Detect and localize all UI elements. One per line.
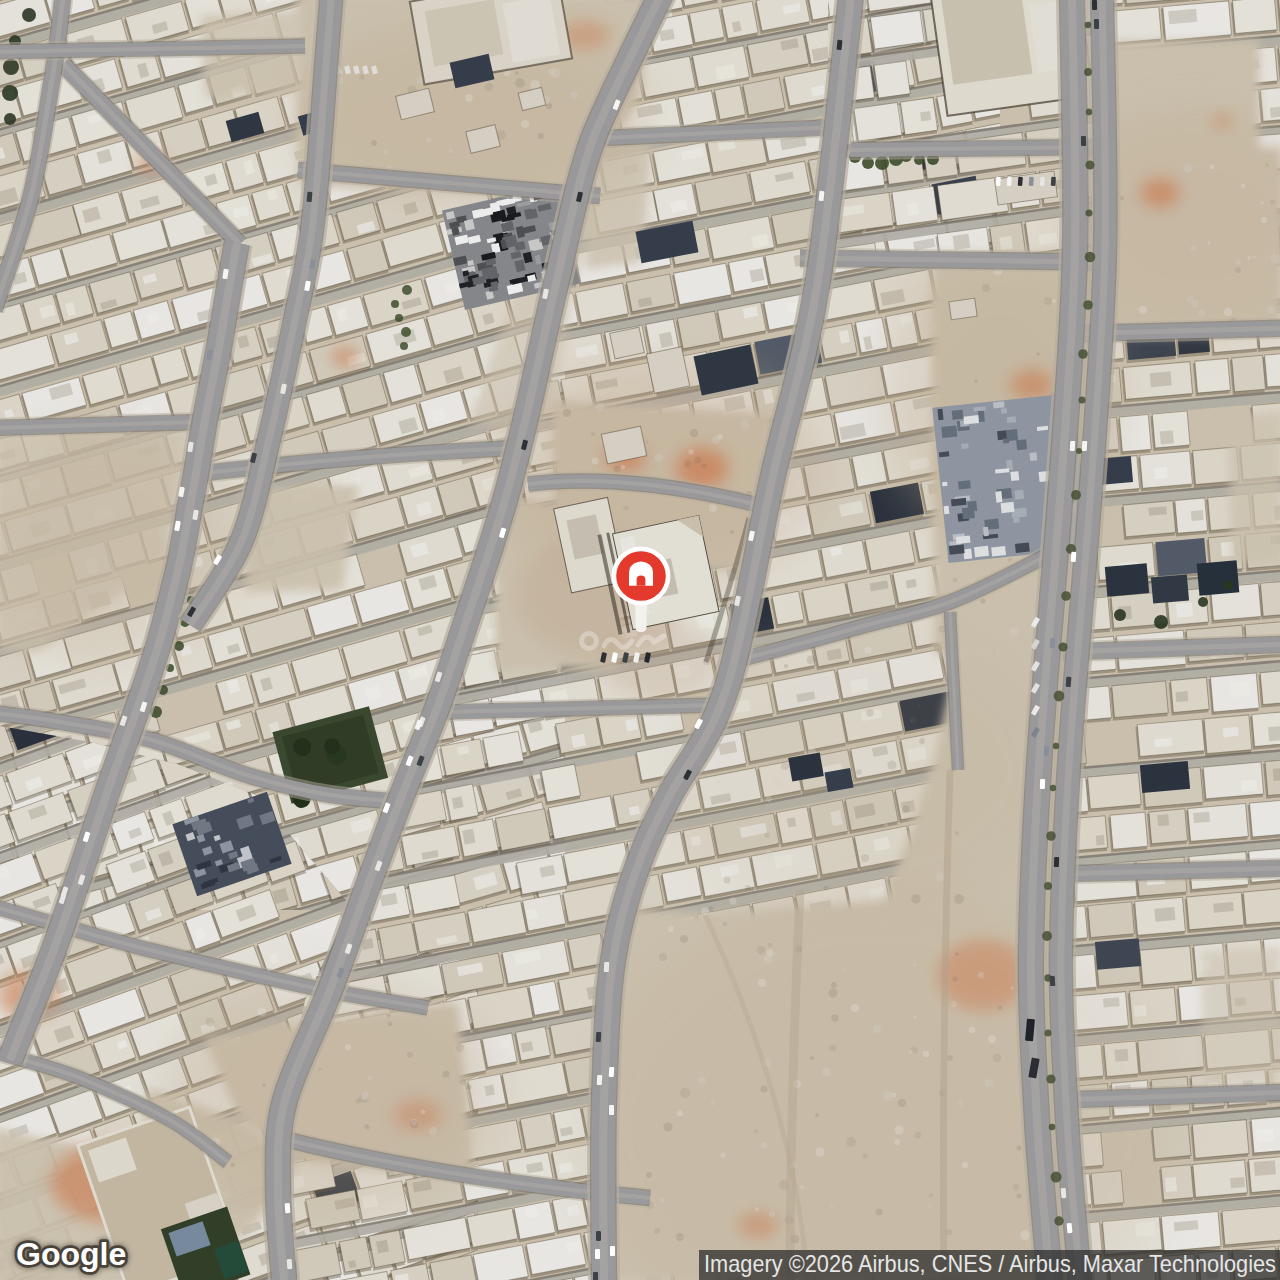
svg-text:Google: Google [16,1236,126,1272]
svg-text:Imagery ©2026 Airbus, CNES / A: Imagery ©2026 Airbus, CNES / Airbus, Max… [704,1250,1276,1277]
